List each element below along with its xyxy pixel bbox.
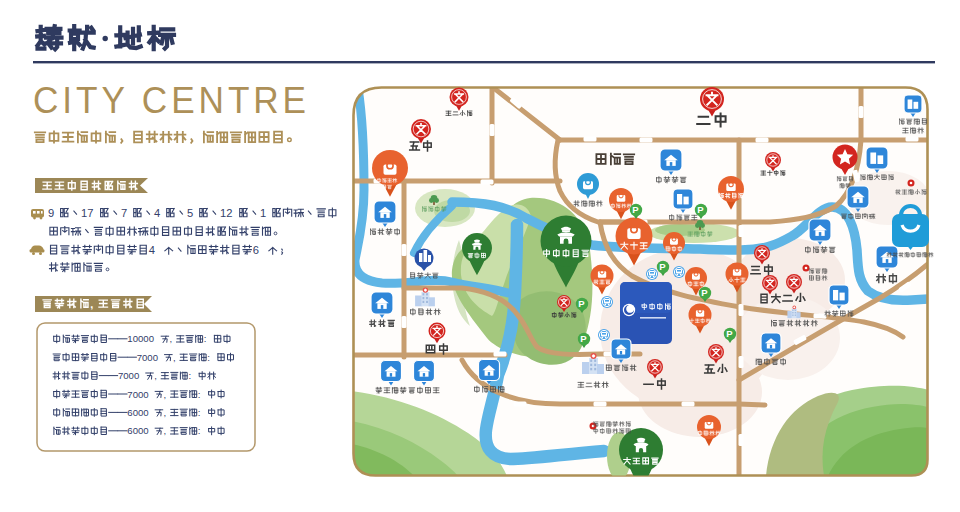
svg-text:P: P [726, 328, 733, 339]
svg-text::: : [198, 407, 201, 418]
svg-text:10000: 10000 [127, 333, 154, 344]
svg-text:,: , [154, 370, 157, 381]
svg-text:17: 17 [81, 207, 93, 219]
svg-text::: : [198, 425, 201, 436]
svg-text:7000: 7000 [137, 352, 158, 363]
svg-text:P: P [697, 204, 704, 215]
svg-text:P: P [659, 261, 666, 272]
svg-text:5: 5 [187, 207, 193, 219]
svg-text:,: , [164, 407, 167, 418]
svg-text:,: , [164, 389, 167, 400]
svg-text::: : [198, 389, 201, 400]
svg-text:CITY CENTRE: CITY CENTRE [33, 80, 310, 121]
svg-text:1: 1 [260, 207, 266, 219]
svg-text:7000: 7000 [118, 370, 139, 381]
svg-text:7000: 7000 [127, 389, 148, 400]
svg-text:6000: 6000 [127, 425, 148, 436]
svg-text:,: , [90, 298, 93, 310]
svg-text:P: P [578, 298, 585, 309]
svg-text::: : [188, 370, 191, 381]
svg-text:6: 6 [253, 244, 259, 256]
svg-text:4: 4 [149, 244, 155, 256]
svg-text:12: 12 [220, 207, 232, 219]
svg-text:P: P [701, 287, 708, 298]
svg-text:7: 7 [121, 207, 127, 219]
svg-text:6000: 6000 [127, 407, 148, 418]
svg-text:,: , [164, 425, 167, 436]
svg-text:9: 9 [48, 207, 54, 219]
svg-text:,: , [173, 352, 176, 363]
svg-text:P: P [580, 333, 587, 344]
svg-text:P: P [632, 204, 639, 215]
svg-text::: : [207, 352, 210, 363]
svg-text::: : [204, 333, 207, 344]
svg-text:,: , [170, 333, 173, 344]
svg-text:4: 4 [154, 207, 160, 219]
